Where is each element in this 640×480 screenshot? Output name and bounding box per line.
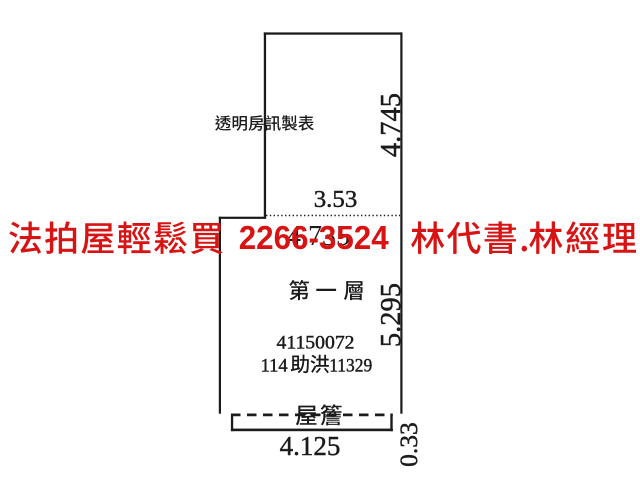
svg-text:4.745: 4.745 — [376, 93, 407, 157]
svg-text:5.295: 5.295 — [376, 283, 407, 347]
svg-text:2266-3524: 2266-3524 — [239, 219, 390, 256]
svg-text:3.53: 3.53 — [314, 187, 358, 213]
svg-text:4.125: 4.125 — [280, 431, 341, 461]
svg-text:41150072: 41150072 — [277, 332, 355, 353]
svg-text:0.33: 0.33 — [394, 422, 423, 467]
svg-text:11329: 11329 — [329, 357, 372, 377]
svg-text:114: 114 — [261, 357, 288, 377]
